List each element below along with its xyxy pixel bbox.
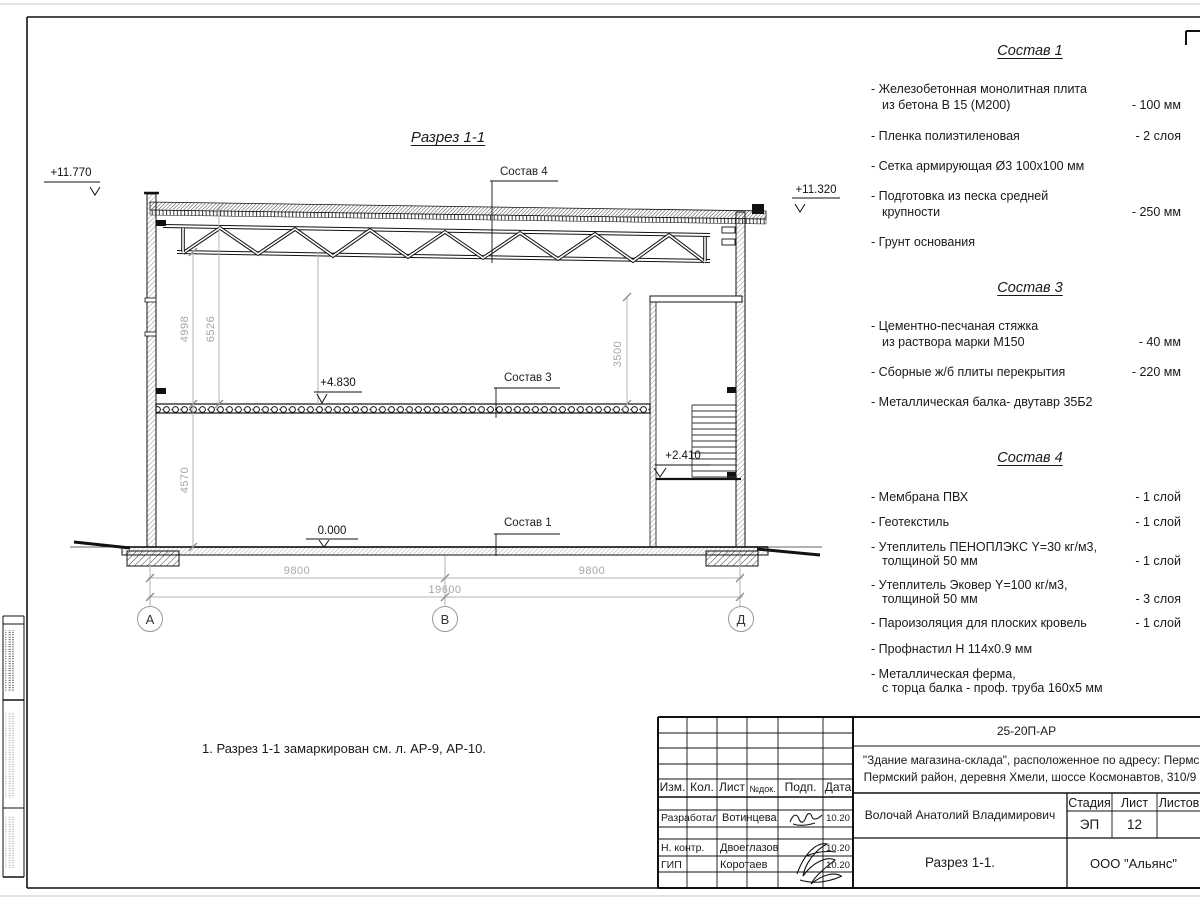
tb-date-ncontrol: 10.20 <box>823 843 853 854</box>
dim-6526: 6526 <box>205 306 217 352</box>
tb-name-gip: Коротаев <box>720 859 768 871</box>
dim-19600: 19600 <box>395 584 495 596</box>
stairs <box>656 405 741 479</box>
dim-3500: 3500 <box>612 331 624 377</box>
comp3-item-line: из раствора марки М150 <box>882 335 1025 349</box>
tb-header-kol: Кол. <box>687 780 717 794</box>
comp1-item-value: - 250 мм <box>1071 205 1181 219</box>
tb-role-gip: ГИП <box>661 859 682 871</box>
left-stamp-strip <box>3 616 24 877</box>
callout-sostav4: Состав 4 <box>500 166 548 178</box>
tb-sheet-title: Разрез 1-1. <box>853 855 1067 870</box>
tb-author: Волочай Анатолий Владимирович <box>853 808 1067 822</box>
comp4-item-line: - Профнастил Н 114х0.9 мм <box>871 642 1032 656</box>
comp4-item-line: - Мембрана ПВХ <box>871 490 968 504</box>
drawing-sheet: { "drawing": { "title": "Разрез 1-1", "n… <box>0 0 1200 900</box>
comp1-item-line: - Пленка полиэтиленовая <box>871 129 1020 143</box>
tb-header-stage: Стадия <box>1067 796 1112 810</box>
comp3-item-value: - 40 мм <box>1071 335 1181 349</box>
roof <box>150 202 766 224</box>
comp3-item-value: - 220 мм <box>1071 365 1181 379</box>
elevation-symbols <box>44 182 840 547</box>
section-view-title: Разрез 1-1 <box>402 129 494 146</box>
axis-bubble-a: А <box>137 606 163 632</box>
tb-company: ООО "Альянс" <box>1067 856 1200 871</box>
callout-sostav1: Состав 1 <box>504 517 552 529</box>
comp1-item-line: - Подготовка из песка средней <box>871 189 1048 203</box>
tb-date-developer: 10.20 <box>823 813 853 824</box>
dim-4998: 4998 <box>179 306 191 352</box>
comp4-item-line: толщиной 50 мм <box>882 592 978 606</box>
comp1-item-value: - 2 слоя <box>1071 129 1181 143</box>
tb-header-sheet: Лист <box>1112 796 1157 810</box>
comp4-item-line: - Утеплитель ПЕНОПЛЭКС Y=30 кг/м3, <box>871 540 1097 554</box>
titleblock-project-line2: Пермский район, деревня Хмели, шоссе Кос… <box>858 770 1200 784</box>
dim-9800-right: 9800 <box>542 565 642 577</box>
comp1-item-line: крупности <box>882 205 940 219</box>
comp4-item-line: толщиной 50 мм <box>882 554 978 568</box>
tb-header-ndok: №док. <box>747 784 778 794</box>
comp1-item-value: - 100 мм <box>1071 98 1181 112</box>
elevation-roof-right: +11.320 <box>790 184 842 196</box>
comp3-item-line: - Металлическая балка- двутавр 35Б2 <box>871 395 1093 409</box>
comp4-item-line: - Утеплитель Эковер Y=100 кг/м3, <box>871 578 1067 592</box>
comp4-item-line: с торца балка - проф. труба 160х5 мм <box>882 681 1103 695</box>
comp4-item-value: - 1 слой <box>1071 515 1181 529</box>
titleblock-doc-number: 25-20П-АР <box>853 724 1200 738</box>
dim-9800-left: 9800 <box>247 565 347 577</box>
comp4-item-value: - 1 слой <box>1071 616 1181 630</box>
roof-truss <box>163 226 710 262</box>
tb-header-data: Дата <box>823 780 853 794</box>
comp1-item-line: из бетона В 15 (М200) <box>882 98 1010 112</box>
comp4-item-line: - Пароизоляция для плоских кровель <box>871 616 1087 630</box>
callout-sostav3: Состав 3 <box>504 372 552 384</box>
axis-bubble-b: В <box>432 606 458 632</box>
tb-header-list: Лист <box>717 780 747 794</box>
dim-4570: 4570 <box>179 457 191 503</box>
tb-header-sheets: Листов <box>1158 796 1200 810</box>
tb-stage-value: ЭП <box>1067 817 1112 832</box>
tb-date-gip: 10.20 <box>823 860 853 871</box>
comp1-item-line: - Грунт основания <box>871 235 975 249</box>
tb-sheet-value: 12 <box>1112 817 1157 832</box>
comp4-item-line: - Геотекстиль <box>871 515 949 529</box>
comp4-item-value: - 1 слой <box>1071 554 1181 568</box>
tb-role-developer: Разработал <box>661 812 718 824</box>
tb-name-ncontrol: Двоеглазов <box>720 842 778 854</box>
tb-header-podp: Подп. <box>778 780 823 794</box>
comp4-title: Состав 4 <box>930 450 1130 466</box>
tb-role-ncontrol: Н. контр. <box>661 842 704 854</box>
elevation-floor2: +4.830 <box>314 377 362 389</box>
comp4-item-line: - Металлическая ферма, <box>871 667 1016 681</box>
elevation-landing: +2.410 <box>658 450 708 462</box>
comp4-item-value: - 1 слой <box>1071 490 1181 504</box>
comp1-item-line: - Сетка армирующая Ø3 100х100 мм <box>871 159 1084 173</box>
elevation-roof-left: +11.770 <box>44 167 98 179</box>
comp4-item-value: - 3 слоя <box>1071 592 1181 606</box>
elevation-ground: 0.000 <box>308 525 356 537</box>
tb-header-izm: Изм. <box>658 780 687 794</box>
comp3-item-line: - Цементно-песчаная стяжка <box>871 319 1038 333</box>
comp1-title: Состав 1 <box>930 43 1130 59</box>
comp3-item-line: - Сборные ж/б плиты перекрытия <box>871 365 1065 379</box>
titleblock-project-line1: "Здание магазина-склада", расположенное … <box>856 753 1200 767</box>
drawing-note: 1. Разрез 1-1 замаркирован см. л. АР-9, … <box>202 741 486 756</box>
comp3-title: Состав 3 <box>930 280 1130 296</box>
axis-bubble-d: Д <box>728 606 754 632</box>
comp1-item-line: - Железобетонная монолитная плита <box>871 82 1087 96</box>
tb-name-developer: Вотинцева <box>722 812 777 824</box>
